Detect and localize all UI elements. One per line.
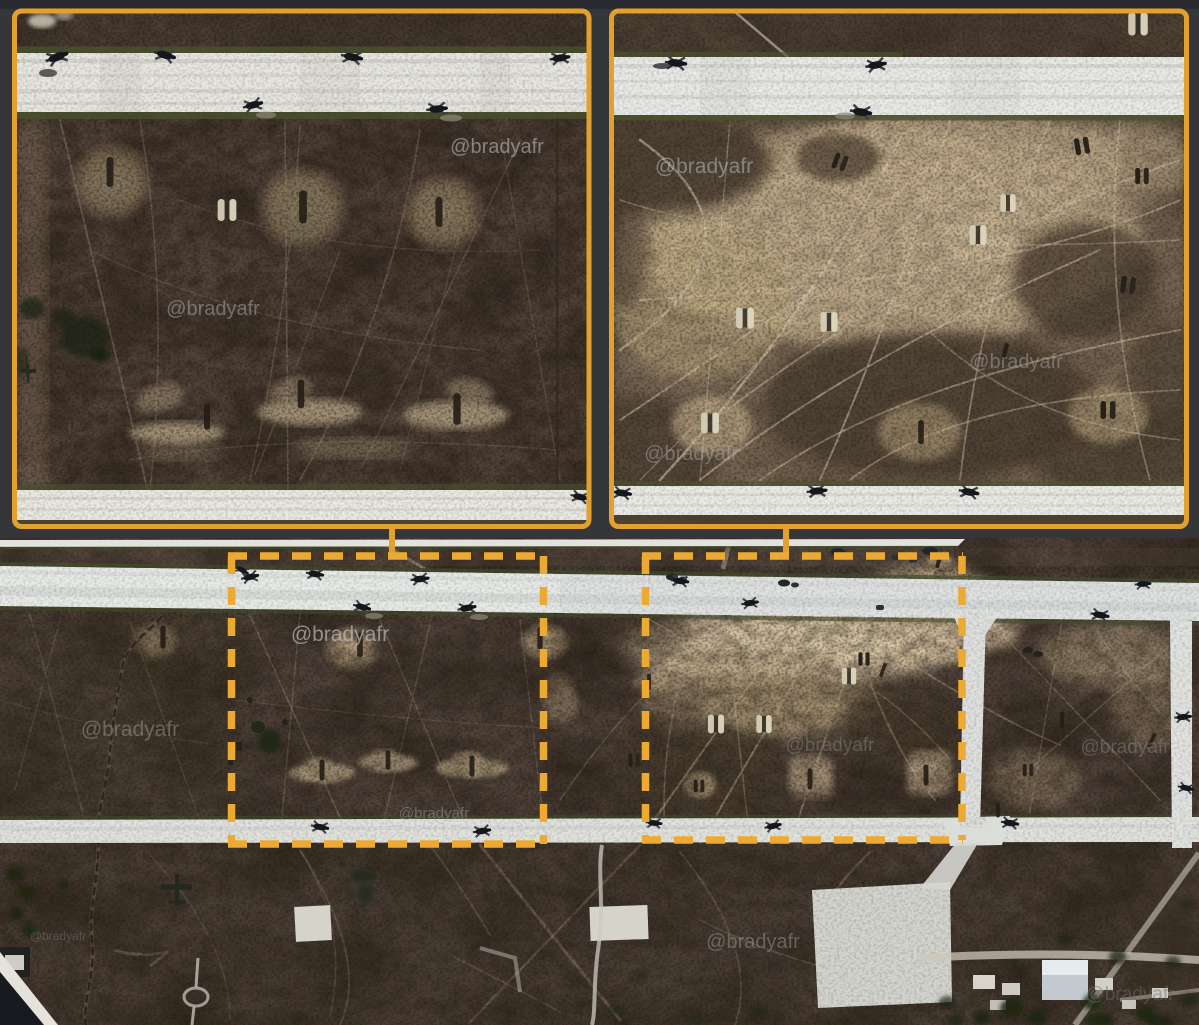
svg-text:@bradyafr: @bradyafr (655, 155, 753, 178)
svg-text:@bradyafr: @bradyafr (644, 443, 738, 465)
svg-text:@bradyafr: @bradyafr (450, 136, 544, 158)
svg-text:@bradyafr: @bradyafr (166, 298, 260, 320)
svg-text:@bradyafr: @bradyafr (81, 718, 179, 741)
svg-text:@bradyafr: @bradyafr (291, 623, 389, 646)
svg-text:@bradyafr: @bradyafr (1081, 737, 1171, 758)
svg-text:@bradyafr: @bradyafr (30, 929, 86, 943)
svg-text:@bradyafr: @bradyafr (399, 805, 469, 822)
svg-text:@bradyafr: @bradyafr (786, 735, 876, 756)
svg-text:@bradyafr: @bradyafr (706, 931, 800, 953)
svg-text:@bradyafr: @bradyafr (969, 351, 1063, 373)
svg-text:@bradyafr: @bradyafr (1086, 984, 1176, 1005)
